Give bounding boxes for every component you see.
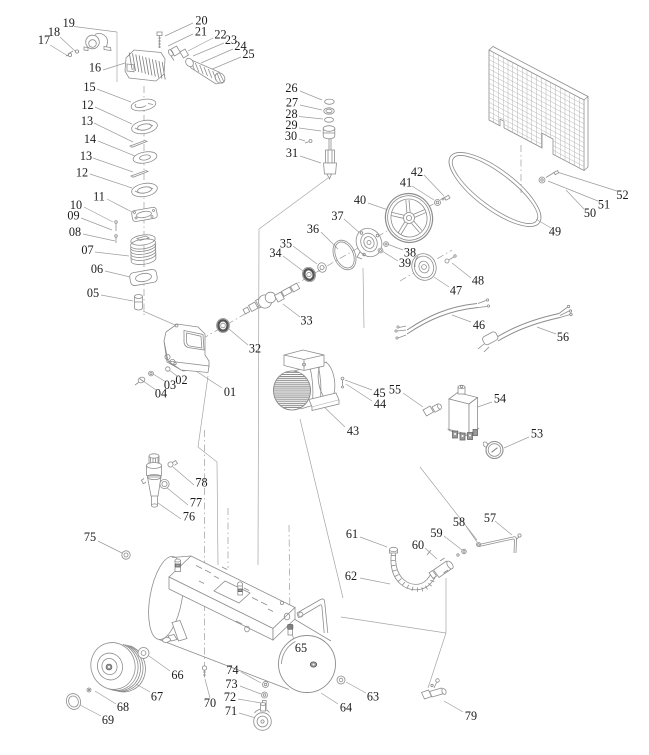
- svg-text:54: 54: [494, 392, 506, 406]
- svg-text:58: 58: [453, 515, 465, 529]
- svg-text:25: 25: [242, 47, 254, 61]
- svg-text:37: 37: [331, 209, 343, 223]
- svg-text:35: 35: [280, 237, 292, 251]
- svg-text:47: 47: [450, 284, 462, 298]
- svg-text:69: 69: [102, 713, 114, 727]
- svg-text:57: 57: [484, 511, 496, 525]
- svg-text:46: 46: [473, 318, 485, 332]
- svg-text:59: 59: [430, 526, 442, 540]
- svg-text:76: 76: [183, 510, 195, 524]
- svg-text:78: 78: [195, 476, 207, 490]
- svg-text:12: 12: [81, 98, 93, 112]
- svg-text:19: 19: [63, 16, 75, 30]
- svg-text:09: 09: [67, 209, 79, 223]
- svg-text:48: 48: [472, 274, 484, 288]
- svg-text:36: 36: [307, 222, 319, 236]
- svg-text:61: 61: [346, 527, 358, 541]
- svg-text:66: 66: [171, 668, 183, 682]
- svg-text:60: 60: [412, 538, 424, 552]
- svg-text:16: 16: [89, 61, 101, 75]
- svg-text:67: 67: [151, 690, 163, 704]
- svg-text:56: 56: [557, 330, 569, 344]
- svg-text:79: 79: [465, 709, 477, 723]
- svg-text:18: 18: [48, 25, 60, 39]
- svg-text:51: 51: [598, 198, 610, 212]
- svg-text:02: 02: [175, 373, 187, 387]
- svg-text:70: 70: [204, 696, 216, 710]
- svg-text:21: 21: [195, 25, 207, 39]
- svg-text:62: 62: [345, 569, 357, 583]
- svg-text:11: 11: [93, 190, 105, 204]
- svg-text:31: 31: [286, 146, 298, 160]
- svg-text:04: 04: [155, 387, 167, 401]
- svg-text:15: 15: [83, 80, 95, 94]
- svg-text:08: 08: [69, 225, 81, 239]
- svg-text:50: 50: [584, 206, 596, 220]
- svg-text:05: 05: [87, 286, 99, 300]
- svg-text:71: 71: [225, 704, 237, 718]
- svg-text:77: 77: [190, 496, 202, 510]
- svg-text:39: 39: [399, 256, 411, 270]
- svg-text:63: 63: [367, 690, 379, 704]
- svg-text:49: 49: [549, 225, 561, 239]
- svg-text:42: 42: [411, 165, 423, 179]
- svg-text:13: 13: [80, 149, 92, 163]
- svg-text:34: 34: [269, 246, 281, 260]
- svg-text:43: 43: [347, 424, 359, 438]
- svg-text:44: 44: [374, 397, 386, 411]
- svg-text:33: 33: [300, 314, 312, 328]
- svg-text:53: 53: [531, 427, 543, 441]
- svg-text:14: 14: [84, 132, 96, 146]
- svg-text:72: 72: [224, 690, 236, 704]
- svg-text:01: 01: [224, 385, 236, 399]
- svg-text:32: 32: [249, 342, 261, 356]
- svg-text:52: 52: [616, 188, 628, 202]
- svg-text:40: 40: [354, 193, 366, 207]
- svg-text:55: 55: [389, 383, 401, 397]
- svg-text:74: 74: [226, 663, 238, 677]
- svg-text:06: 06: [91, 262, 103, 276]
- svg-text:65: 65: [295, 641, 307, 655]
- svg-text:13: 13: [81, 114, 93, 128]
- svg-text:26: 26: [285, 81, 297, 95]
- svg-text:68: 68: [117, 700, 129, 714]
- svg-text:30: 30: [285, 129, 297, 143]
- svg-text:07: 07: [81, 243, 93, 257]
- svg-text:73: 73: [225, 677, 237, 691]
- svg-text:75: 75: [84, 530, 96, 544]
- svg-text:64: 64: [340, 701, 352, 715]
- svg-text:12: 12: [76, 166, 88, 180]
